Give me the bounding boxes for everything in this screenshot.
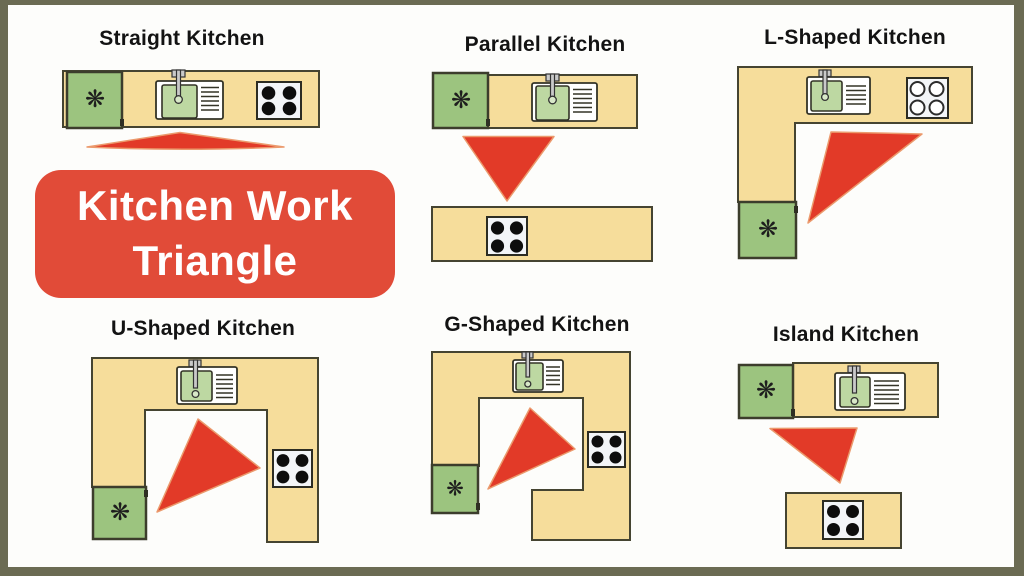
fridge-fan-icon: ❋ bbox=[110, 501, 130, 525]
fridge-fan-icon: ❋ bbox=[451, 89, 471, 113]
title-u-shaped-kitchen: U-Shaped Kitchen bbox=[111, 317, 295, 341]
stove bbox=[823, 501, 863, 539]
stove bbox=[487, 217, 527, 255]
work-triangle bbox=[808, 132, 922, 223]
fridge-fan-icon: ❋ bbox=[446, 479, 464, 500]
kitchen-work-triangle-infographic: Straight Kitchen Parallel Kitchen L-Shap… bbox=[0, 0, 1024, 576]
fridge-fan-icon: ❋ bbox=[85, 88, 105, 112]
work-triangle bbox=[157, 419, 260, 512]
badge-line-2: Triangle bbox=[132, 234, 297, 289]
work-triangle bbox=[463, 137, 554, 202]
title-l-shaped-kitchen: L-Shaped Kitchen bbox=[764, 26, 946, 50]
stove bbox=[588, 432, 625, 467]
sink bbox=[177, 360, 237, 404]
g-shaped-kitchen-diagram bbox=[432, 352, 630, 540]
sink bbox=[807, 70, 870, 114]
sink bbox=[835, 366, 905, 410]
work-triangle bbox=[770, 428, 857, 483]
fridge-fan-icon: ❋ bbox=[756, 379, 776, 403]
fridge-fan-icon: ❋ bbox=[758, 218, 778, 242]
badge-line-1: Kitchen Work bbox=[77, 179, 353, 234]
title-g-shaped-kitchen: G-Shaped Kitchen bbox=[444, 313, 629, 337]
title-parallel-kitchen: Parallel Kitchen bbox=[465, 33, 626, 57]
title-straight-kitchen: Straight Kitchen bbox=[99, 27, 264, 51]
work-triangle bbox=[87, 133, 284, 150]
title-island-kitchen: Island Kitchen bbox=[773, 323, 919, 347]
kitchen-work-triangle-badge: Kitchen Work Triangle bbox=[35, 170, 395, 298]
counter-bottom bbox=[432, 207, 652, 261]
work-triangle bbox=[488, 408, 575, 489]
stove bbox=[907, 78, 948, 118]
stove bbox=[273, 450, 312, 487]
stove bbox=[257, 82, 301, 119]
